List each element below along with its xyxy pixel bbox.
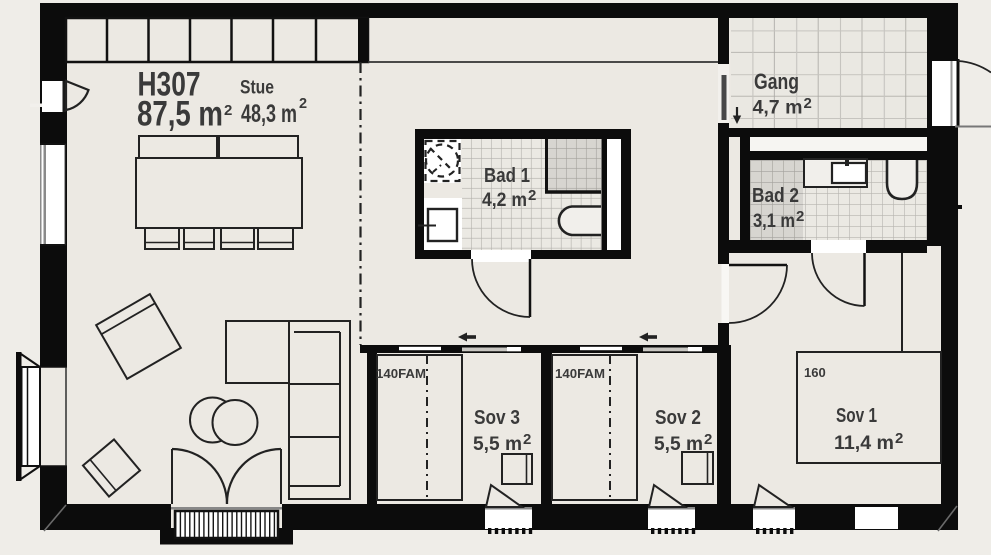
svg-text:5,5 m: 5,5 m — [473, 434, 522, 455]
svg-text:2: 2 — [895, 430, 903, 447]
svg-text:Gang: Gang — [754, 69, 799, 94]
svg-text:Sov 3: Sov 3 — [474, 407, 520, 429]
svg-text:Bad 1: Bad 1 — [484, 165, 530, 187]
svg-text:2: 2 — [796, 208, 804, 225]
svg-text:2: 2 — [299, 96, 307, 112]
svg-text:4,2 m: 4,2 m — [482, 190, 527, 211]
svg-text:2: 2 — [523, 431, 531, 448]
svg-text:2: 2 — [528, 187, 536, 204]
svg-text:140FAM: 140FAM — [555, 366, 605, 381]
svg-text:2: 2 — [224, 102, 232, 119]
svg-text:Stue: Stue — [240, 78, 274, 99]
svg-text:140FAM: 140FAM — [376, 366, 426, 381]
svg-text:Bad 2: Bad 2 — [752, 185, 799, 207]
svg-text:2: 2 — [704, 431, 712, 448]
svg-text:4,7 m: 4,7 m — [753, 98, 803, 119]
svg-text:48,3 m: 48,3 m — [241, 100, 297, 128]
svg-text:3,1 m: 3,1 m — [753, 211, 795, 232]
svg-text:11,4 m: 11,4 m — [834, 433, 894, 454]
svg-text:87,5 m: 87,5 m — [137, 95, 223, 134]
svg-text:5,5 m: 5,5 m — [654, 434, 703, 455]
svg-text:2: 2 — [804, 95, 812, 112]
svg-text:Sov 1: Sov 1 — [836, 405, 877, 427]
svg-text:160: 160 — [804, 365, 826, 380]
svg-text:Sov 2: Sov 2 — [655, 407, 701, 429]
